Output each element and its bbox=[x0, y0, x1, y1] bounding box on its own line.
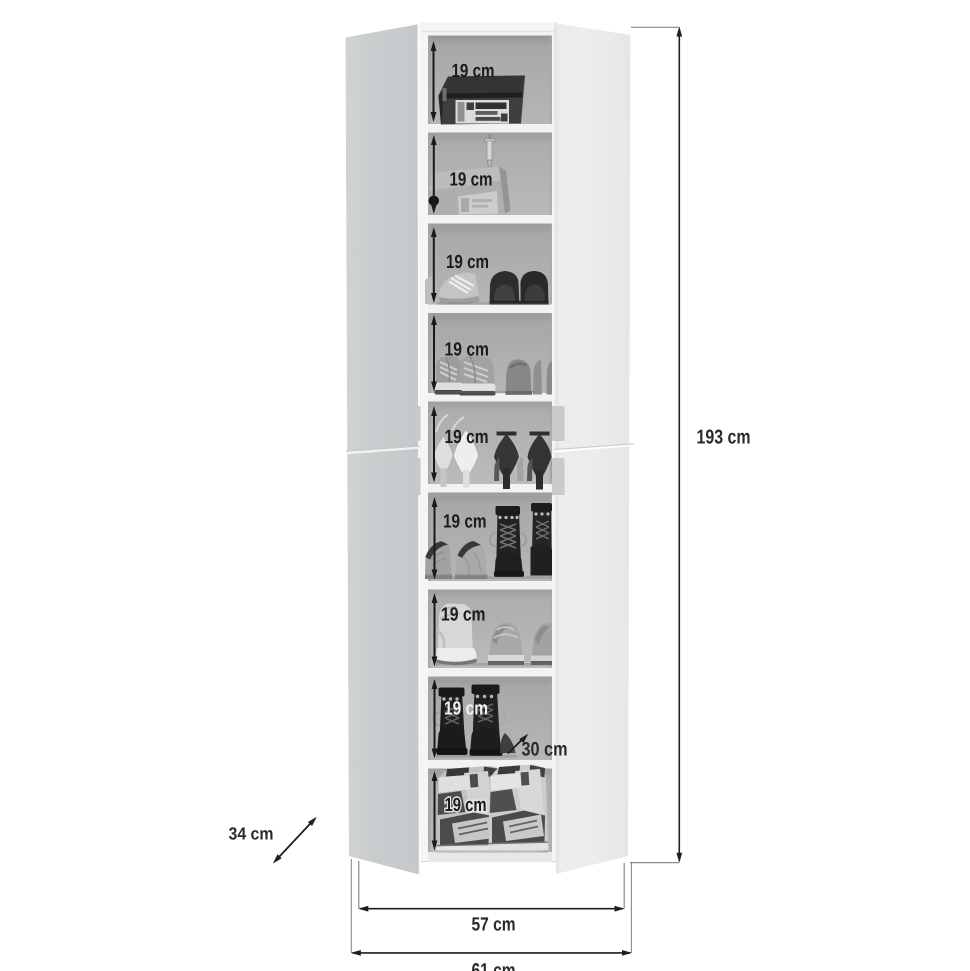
svg-text:34 cm: 34 cm bbox=[229, 824, 274, 844]
svg-text:19 cm: 19 cm bbox=[444, 699, 488, 720]
svg-text:19 cm: 19 cm bbox=[445, 340, 490, 361]
svg-text:19 cm: 19 cm bbox=[445, 795, 487, 816]
svg-text:19 cm: 19 cm bbox=[450, 170, 493, 191]
svg-text:19 cm: 19 cm bbox=[441, 605, 486, 626]
svg-text:19 cm: 19 cm bbox=[446, 252, 489, 273]
svg-text:19 cm: 19 cm bbox=[445, 427, 489, 448]
svg-text:30 cm: 30 cm bbox=[522, 739, 568, 761]
svg-text:61 cm: 61 cm bbox=[472, 960, 516, 971]
svg-text:19 cm: 19 cm bbox=[452, 61, 495, 82]
svg-text:193 cm: 193 cm bbox=[697, 427, 751, 449]
svg-text:19 cm: 19 cm bbox=[443, 512, 487, 533]
svg-text:57 cm: 57 cm bbox=[472, 915, 516, 936]
